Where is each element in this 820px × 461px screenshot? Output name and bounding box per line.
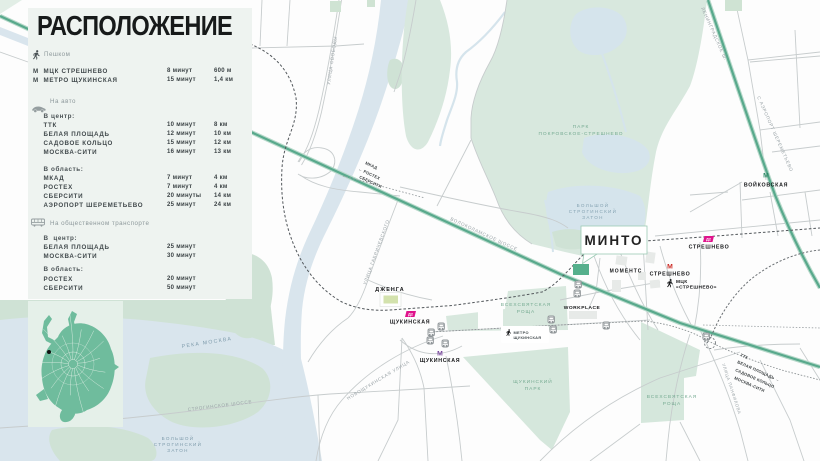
svg-text:БОЛЬШОЙ: БОЛЬШОЙ [162,434,195,441]
svg-text:СТРОГИНСКИЙ: СТРОГИНСКИЙ [569,207,618,214]
svg-text:РОЩА: РОЩА [663,401,682,407]
svg-text:БОЛЬШОЙ: БОЛЬШОЙ [577,201,610,208]
svg-text:Д2: Д2 [706,237,712,242]
svg-text:ПАРК: ПАРК [525,386,542,392]
svg-text:ЩУКИНСКАЯ: ЩУКИНСКАЯ [420,358,461,364]
svg-text:ЗАТОН: ЗАТОН [167,448,188,453]
svg-text:РОЩА: РОЩА [517,309,536,315]
svg-text:М: М [667,264,673,271]
svg-text:М: М [763,173,769,180]
svg-text:СТРЕШНЕВО: СТРЕШНЕВО [689,245,730,251]
svg-text:МЦК: МЦК [676,279,688,285]
svg-text:ВСЕХСВЯТСКАЯ: ВСЕХСВЯТСКАЯ [501,302,552,308]
svg-text:ДЖЕНГА: ДЖЕНГА [375,287,404,293]
svg-text:МОМЕНТС: МОМЕНТС [610,269,643,275]
svg-text:ВСЕХСВЯТСКАЯ: ВСЕХСВЯТСКАЯ [647,394,698,400]
svg-text:«СТРЕШНЕВО»: «СТРЕШНЕВО» [676,285,717,291]
svg-text:WORKPLACE: WORKPLACE [564,305,601,311]
svg-text:ВОЙКОВСКАЯ: ВОЙКОВСКАЯ [744,181,788,189]
svg-text:ПОКРОВСКОЕ-СТРЕШНЕВО: ПОКРОВСКОЕ-СТРЕШНЕВО [538,131,623,137]
svg-text:ЗАТОН: ЗАТОН [582,215,603,220]
svg-text:ЩУКИНСКАЯ: ЩУКИНСКАЯ [514,335,542,340]
svg-text:СТРЕШНЕВО: СТРЕШНЕВО [650,272,691,278]
svg-text:СТРОГИНСКИЙ: СТРОГИНСКИЙ [154,440,203,447]
svg-text:Д2: Д2 [408,312,414,317]
svg-text:ПАРК: ПАРК [573,124,590,130]
svg-text:М: М [437,351,443,358]
svg-text:ЩУКИНСКАЯ: ЩУКИНСКАЯ [390,320,431,326]
svg-text:МИНТО: МИНТО [584,233,643,248]
